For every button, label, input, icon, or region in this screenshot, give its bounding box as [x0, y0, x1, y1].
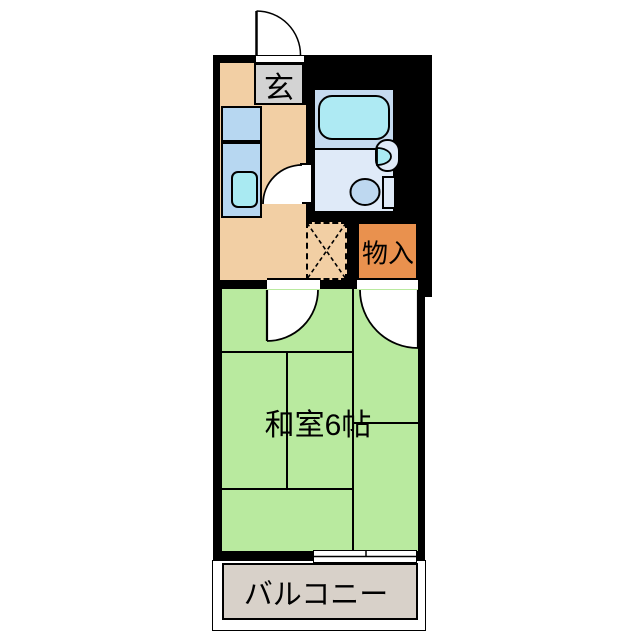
main-room-label: 和室6帖	[265, 400, 372, 444]
bathtub	[318, 95, 390, 140]
bathroom-door-leaf	[300, 163, 313, 204]
kitchen-counter-upper	[221, 106, 262, 142]
kitchen-floor-upper	[220, 63, 254, 105]
washer-space-dashed-box	[306, 222, 347, 280]
storage-label: 物入	[362, 234, 414, 271]
floor-plan: 玄 物入 和室6帖 バルコニー	[0, 0, 640, 640]
kitchen-sink	[231, 171, 258, 208]
entrance-label: 玄	[264, 63, 294, 107]
balcony-window	[313, 550, 417, 563]
entrance-door-opening	[256, 55, 304, 63]
balcony-label: バルコニー	[244, 571, 388, 613]
entrance-door-swing	[257, 11, 301, 55]
